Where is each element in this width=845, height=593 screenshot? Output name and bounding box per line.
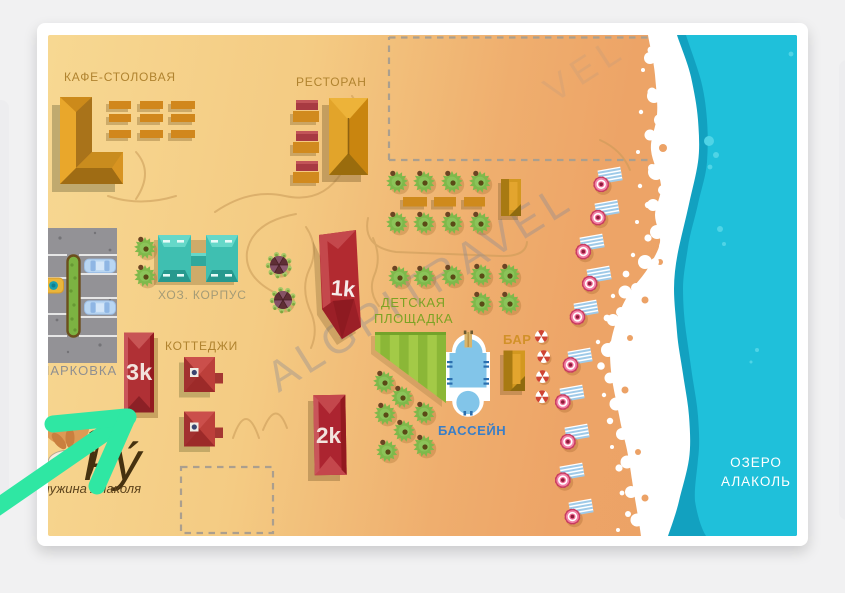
svg-text:ПАРКОВКА: ПАРКОВКА <box>40 363 117 378</box>
svg-text:ДЕТСКАЯ: ДЕТСКАЯ <box>381 295 446 310</box>
svg-text:1k: 1k <box>330 275 357 302</box>
svg-text:КАФЕ-СТОЛОВАЯ: КАФЕ-СТОЛОВАЯ <box>64 70 176 84</box>
svg-text:ХОЗ. КОРПУС: ХОЗ. КОРПУС <box>158 288 247 302</box>
svg-text:РЕСТОРАН: РЕСТОРАН <box>296 75 367 89</box>
svg-text:2k: 2k <box>316 423 342 448</box>
svg-text:3k: 3k <box>126 359 153 385</box>
svg-text:АЛАКОЛЬ: АЛАКОЛЬ <box>721 474 791 489</box>
svg-text:ПЛОЩАДКА: ПЛОЩАДКА <box>374 311 453 326</box>
svg-text:БАССЕЙН: БАССЕЙН <box>438 423 506 438</box>
svg-text:КОТТЕДЖИ: КОТТЕДЖИ <box>165 339 238 353</box>
svg-text:БАР: БАР <box>503 332 531 347</box>
svg-text:ОЗЕРО: ОЗЕРО <box>730 455 782 470</box>
